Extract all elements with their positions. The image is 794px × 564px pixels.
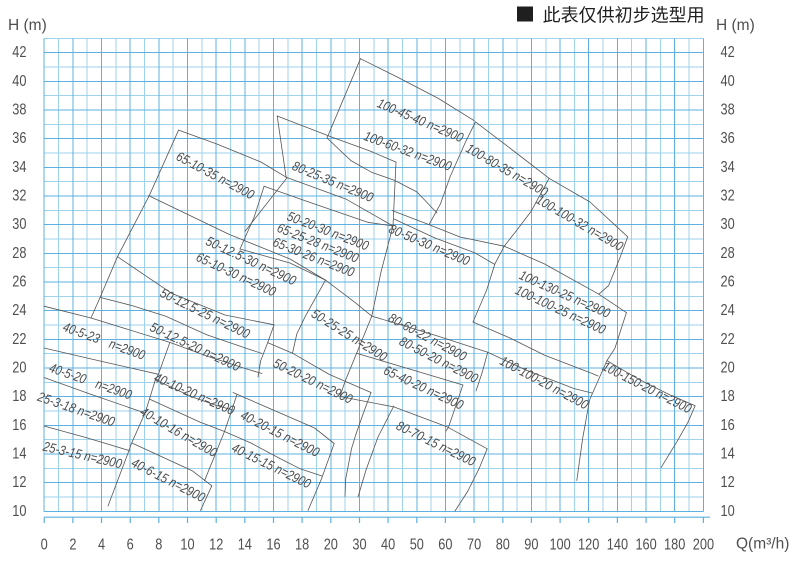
svg-text:24: 24 <box>721 302 736 319</box>
svg-text:70: 70 <box>467 537 482 554</box>
svg-text:36: 36 <box>721 130 735 147</box>
svg-text:30: 30 <box>721 216 736 233</box>
svg-text:4: 4 <box>98 537 105 554</box>
svg-text:10: 10 <box>721 503 736 520</box>
svg-text:30: 30 <box>12 216 27 233</box>
svg-text:100: 100 <box>549 537 571 554</box>
svg-text:20: 20 <box>12 360 27 377</box>
svg-text:34: 34 <box>721 159 736 176</box>
svg-text:18: 18 <box>12 388 26 405</box>
svg-text:40: 40 <box>381 537 396 554</box>
svg-text:40: 40 <box>12 73 27 90</box>
svg-text:18: 18 <box>721 388 735 405</box>
svg-text:26: 26 <box>721 274 735 291</box>
svg-text:200: 200 <box>693 537 715 554</box>
svg-text:H (m): H (m) <box>8 17 47 34</box>
svg-text:16: 16 <box>266 537 280 554</box>
svg-text:30: 30 <box>352 537 367 554</box>
svg-text:14: 14 <box>238 537 253 554</box>
svg-text:此表仅供初步选型用: 此表仅供初步选型用 <box>543 6 705 26</box>
svg-text:24: 24 <box>12 302 27 319</box>
svg-text:60: 60 <box>438 537 453 554</box>
svg-text:2: 2 <box>69 537 76 554</box>
svg-text:90: 90 <box>524 537 539 554</box>
svg-text:32: 32 <box>721 188 735 205</box>
svg-text:Q(m³/h): Q(m³/h) <box>736 536 789 553</box>
svg-text:8: 8 <box>155 537 162 554</box>
svg-text:40: 40 <box>721 73 736 90</box>
svg-text:50: 50 <box>410 537 425 554</box>
svg-text:14: 14 <box>12 446 27 463</box>
svg-text:10: 10 <box>12 503 27 520</box>
svg-text:28: 28 <box>12 245 26 262</box>
svg-text:42: 42 <box>721 44 735 61</box>
svg-text:16: 16 <box>12 417 26 434</box>
svg-text:28: 28 <box>721 245 735 262</box>
svg-text:140: 140 <box>607 537 629 554</box>
svg-text:160: 160 <box>635 537 657 554</box>
svg-text:22: 22 <box>12 331 26 348</box>
svg-text:20: 20 <box>721 360 736 377</box>
svg-text:38: 38 <box>721 102 735 119</box>
svg-text:32: 32 <box>12 188 26 205</box>
svg-text:14: 14 <box>721 446 736 463</box>
svg-text:12: 12 <box>12 474 26 491</box>
svg-text:36: 36 <box>12 130 26 147</box>
svg-text:12: 12 <box>209 537 223 554</box>
svg-text:18: 18 <box>295 537 309 554</box>
svg-text:42: 42 <box>12 44 26 61</box>
svg-text:180: 180 <box>664 537 686 554</box>
svg-text:H (m): H (m) <box>716 17 755 34</box>
svg-text:12: 12 <box>721 474 735 491</box>
svg-text:80: 80 <box>496 537 511 554</box>
svg-text:26: 26 <box>12 274 26 291</box>
svg-text:120: 120 <box>578 537 600 554</box>
svg-text:16: 16 <box>721 417 735 434</box>
svg-text:22: 22 <box>721 331 735 348</box>
svg-text:6: 6 <box>127 537 134 554</box>
svg-text:38: 38 <box>12 102 26 119</box>
svg-text:34: 34 <box>12 159 27 176</box>
svg-text:0: 0 <box>41 537 48 554</box>
svg-text:10: 10 <box>180 537 195 554</box>
svg-text:20: 20 <box>324 537 339 554</box>
